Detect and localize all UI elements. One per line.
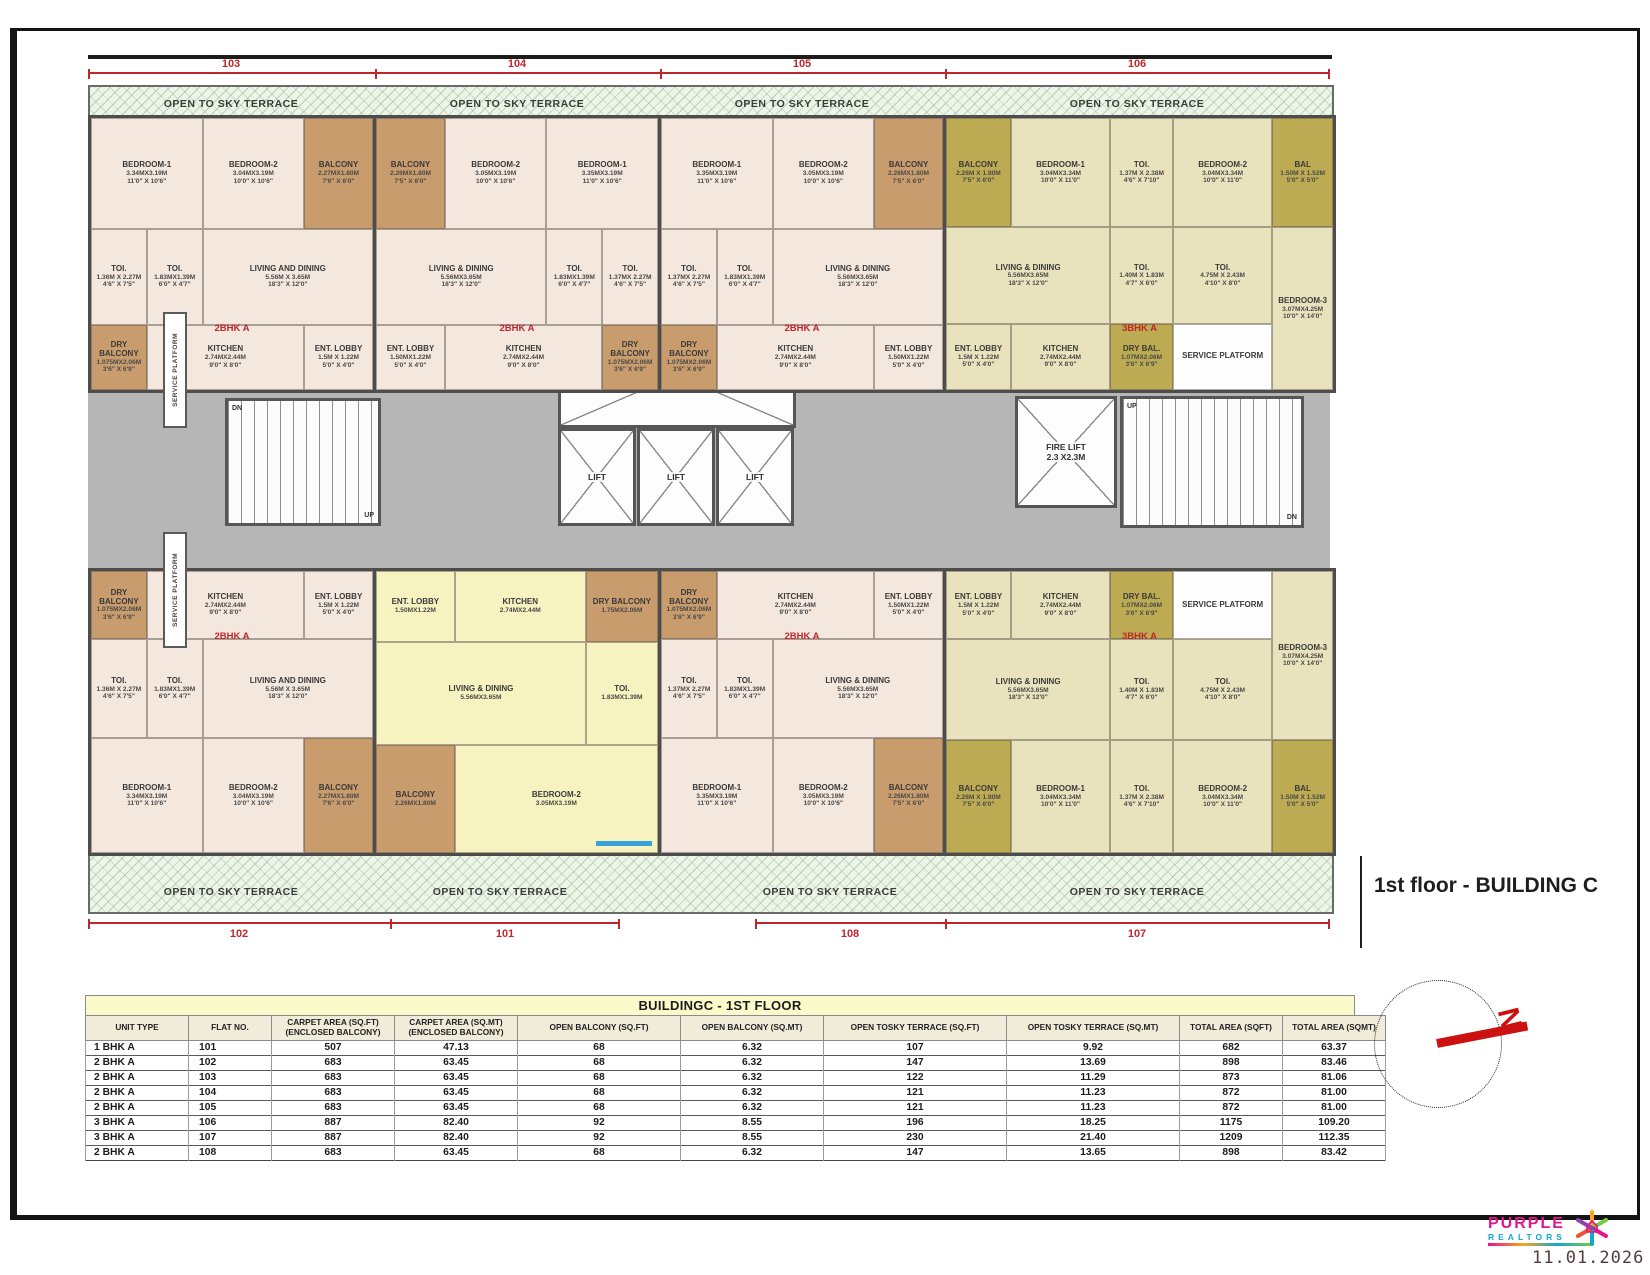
table-cell: 11.29 <box>1007 1070 1180 1085</box>
table-cell: 11.23 <box>1007 1100 1180 1115</box>
room-bal: BALCONY2.27MX1.80M7'6" X 6'0" <box>304 118 373 229</box>
room-dry: DRY BALCONY1.075MX2.06M3'6" X 6'9" <box>91 325 147 390</box>
table-cell: 18.25 <box>1007 1115 1180 1130</box>
room-b1: BEDROOM-13.35MX3.19M11'0" X 10'6" <box>661 738 773 853</box>
col-header: TOTAL AREA (SQFT) <box>1180 1016 1283 1041</box>
table-cell: 6.32 <box>681 1055 824 1070</box>
terrace-label: OPEN TO SKY TERRACE <box>1070 98 1205 110</box>
room-ld: LIVING & DINING5.56MX3.65M18'3" X 12'0" <box>946 227 1110 324</box>
terrace-label: OPEN TO SKY TERRACE <box>735 98 870 110</box>
table-cell: 8.55 <box>681 1130 824 1145</box>
table-cell: 683 <box>272 1070 395 1085</box>
room-toi2: TOI.1.83MX1.39M6'0" X 4'7" <box>717 229 773 325</box>
room-b2: BEDROOM-23.05MX3.19M <box>455 745 658 853</box>
area-statement: BUILDINGC - 1ST FLOOR UNIT TYPEFLAT NO.C… <box>85 995 1355 1161</box>
room-sp: SERVICE PLATFORM <box>1173 324 1272 390</box>
table-cell: 1209 <box>1180 1130 1283 1145</box>
terrace-label: OPEN TO SKY TERRACE <box>1070 886 1205 898</box>
unit-102: DRY BALCONY1.075MX2.06M3'6" X 6'9"KITCHE… <box>88 568 376 856</box>
room-ld: LIVING & DINING5.56MX3.65M18'3" X 12'0" <box>376 229 546 325</box>
room-kit: KITCHEN2.74MX2.44M9'0" X 8'0" <box>1011 571 1110 639</box>
date-stamp: 11.01.2026 <box>1532 1248 1644 1268</box>
room-toi: TOI.1.37MX 2.27M4'6" X 7'5" <box>661 229 717 325</box>
table-row: 2 BHK A10468363.45686.3212111.2387281.00 <box>86 1085 1386 1100</box>
room-b2: BEDROOM-23.05MX3.19M10'0" X 10'6" <box>773 118 874 229</box>
col-header: OPEN BALCONY (SQ.FT) <box>518 1016 681 1041</box>
table-cell: 81.00 <box>1283 1085 1386 1100</box>
unit-type-label: 2BHK A <box>214 323 249 334</box>
table-cell: 104 <box>189 1085 272 1100</box>
table-cell: 196 <box>824 1115 1007 1130</box>
room-bal2: BAL1.50M X 1.52M5'0" X 5'0" <box>1272 740 1333 853</box>
table-cell: 6.32 <box>681 1040 824 1055</box>
table-cell: 8.55 <box>681 1115 824 1130</box>
room-dry: DRY BALCONY1.075MX2.06M3'6" X 6'9" <box>661 325 717 390</box>
table-row: 3 BHK A10688782.40928.5519618.251175109.… <box>86 1115 1386 1130</box>
room-b1: BEDROOM-13.34MX3.19M11'0" X 10'6" <box>91 118 203 229</box>
flat-number-103: 103 <box>222 58 240 70</box>
table-cell: 887 <box>272 1115 395 1130</box>
table-cell: 122 <box>824 1070 1007 1085</box>
room-t2: TOI.1.40M X 1.83M4'7" X 6'0" <box>1110 639 1173 740</box>
table-cell: 872 <box>1180 1100 1283 1115</box>
table-cell: 507 <box>272 1040 395 1055</box>
col-header: TOTAL AREA (SQMT) <box>1283 1016 1386 1041</box>
table-cell: 2 BHK A <box>86 1145 189 1160</box>
room-kit: KITCHEN2.74MX2.44M <box>455 571 586 642</box>
col-header: OPEN TOSKY TERRACE (SQ.FT) <box>824 1016 1007 1041</box>
room-kit: KITCHEN2.74MX2.44M9'0" X 8'0" <box>1011 324 1110 390</box>
room-ent: ENT. LOBBY1.50MX1.22M5'0" X 4'0" <box>874 325 943 390</box>
table-cell: 872 <box>1180 1085 1283 1100</box>
col-header: UNIT TYPE <box>86 1016 189 1041</box>
logo-name: PURPLE <box>1488 1216 1648 1232</box>
entrance-marker <box>596 841 652 846</box>
table-cell: 106 <box>189 1115 272 1130</box>
flat-number-104: 104 <box>508 58 526 70</box>
room-ld: LIVING & DINING5.56MX3.65M18'3" X 12'0" <box>946 639 1110 740</box>
terrace-label: OPEN TO SKY TERRACE <box>763 886 898 898</box>
room-ent: ENT. LOBBY1.5M X 1.22M5'0" X 4'0" <box>304 571 373 639</box>
table-row: 2 BHK A10568363.45686.3212111.2387281.00 <box>86 1100 1386 1115</box>
col-header: FLAT NO. <box>189 1016 272 1041</box>
table-cell: 68 <box>518 1145 681 1160</box>
table-cell: 83.46 <box>1283 1055 1386 1070</box>
table-cell: 3 BHK A <box>86 1115 189 1130</box>
room-ent: ENT. LOBBY1.50MX1.22M5'0" X 4'0" <box>376 325 445 390</box>
table-cell: 105 <box>189 1100 272 1115</box>
table-cell: 898 <box>1180 1145 1283 1160</box>
table-cell: 898 <box>1180 1055 1283 1070</box>
room-kit: KITCHEN2.74MX2.44M9'0" X 8'0" <box>717 571 874 639</box>
table-cell: 82.40 <box>395 1130 518 1145</box>
col-header: OPEN TOSKY TERRACE (SQ.MT) <box>1007 1016 1180 1041</box>
table-cell: 6.32 <box>681 1100 824 1115</box>
room-b2: BEDROOM-23.05MX3.19M10'0" X 10'6" <box>773 738 874 853</box>
service-platform-left-bottom: SERVICE PLATFORM <box>163 532 187 648</box>
table-cell: 103 <box>189 1070 272 1085</box>
room-bal2: BAL1.50M X 1.52M5'0" X 5'0" <box>1272 118 1333 227</box>
table-cell: 107 <box>189 1130 272 1145</box>
service-platform-left-top: SERVICE PLATFORM <box>163 312 187 428</box>
table-cell: 47.13 <box>395 1040 518 1055</box>
table-title: BUILDINGC - 1ST FLOOR <box>85 995 1355 1015</box>
table-cell: 63.45 <box>395 1100 518 1115</box>
unit-108: DRY BALCONY1.075MX2.06M3'6" X 6'9"KITCHE… <box>658 568 946 856</box>
room-t3: TOI.4.75M X 2.43M4'10" X 8'0" <box>1173 227 1272 324</box>
room-ld: LIVING & DINING5.56MX3.65M18'3" X 12'0" <box>773 639 943 739</box>
table-cell: 102 <box>189 1055 272 1070</box>
logo-sub: REALTORS <box>1488 1232 1648 1242</box>
table-cell: 83.42 <box>1283 1145 1386 1160</box>
flat-number-107: 107 <box>1128 928 1146 940</box>
room-bal: BALCONY2.26M X 1.80M7'5" X 6'0" <box>946 740 1011 853</box>
table-cell: 68 <box>518 1055 681 1070</box>
table-cell: 121 <box>824 1085 1007 1100</box>
room-ld: LIVING AND DINING5.56M X 3.65M18'3" X 12… <box>203 229 373 325</box>
terrace-label: OPEN TO SKY TERRACE <box>164 98 299 110</box>
col-header: CARPET AREA (SQ.FT)(ENCLOSED BALCONY) <box>272 1016 395 1041</box>
table-cell: 1 BHK A <box>86 1040 189 1055</box>
table-cell: 63.37 <box>1283 1040 1386 1055</box>
table-cell: 230 <box>824 1130 1007 1145</box>
lift-3: LIFT <box>716 428 794 526</box>
table-cell: 112.35 <box>1283 1130 1386 1145</box>
flat-number-101: 101 <box>496 928 514 940</box>
unit-type-label: 2BHK A <box>499 323 534 334</box>
table-cell: 2 BHK A <box>86 1085 189 1100</box>
table-cell: 63.45 <box>395 1145 518 1160</box>
room-b1: BEDROOM-13.34MX3.19M11'0" X 10'6" <box>91 738 203 853</box>
table-cell: 63.45 <box>395 1085 518 1100</box>
room-toi2: TOI.1.83MX1.39M6'0" X 4'7" <box>546 229 602 325</box>
floor-plan: 103 104 105 106 OPEN TO SKY TERRACE OPEN… <box>0 0 1650 960</box>
flat-number-108: 108 <box>841 928 859 940</box>
table-cell: 81.06 <box>1283 1070 1386 1085</box>
table-cell: 6.32 <box>681 1145 824 1160</box>
unit-type-label: 2BHK A <box>784 631 819 642</box>
unit-103: BEDROOM-13.34MX3.19M11'0" X 10'6"BEDROOM… <box>88 115 376 393</box>
room-t1: TOI.1.37M X 2.38M4'6" X 7'10" <box>1110 118 1173 227</box>
room-toi: TOI.1.36M X 2.27M4'6" X 7'5" <box>91 639 147 739</box>
room-toi: TOI.1.36M X 2.27M4'6" X 7'5" <box>91 229 147 325</box>
table-cell: 2 BHK A <box>86 1100 189 1115</box>
room-bal: BALCONY2.26MX1.80M7'5" X 6'0" <box>874 118 943 229</box>
room-bal: BALCONY2.26MX1.80M7'5" X 6'0" <box>874 738 943 853</box>
room-t3: TOI.4.75M X 2.43M4'10" X 8'0" <box>1173 639 1272 740</box>
table-row: 1 BHK A10150747.13686.321079.9268263.37 <box>86 1040 1386 1055</box>
unit-type-label: 3BHK A <box>1122 631 1157 642</box>
table-cell: 11.23 <box>1007 1085 1180 1100</box>
room-kit: KITCHEN2.74MX2.44M9'0" X 8'0" <box>717 325 874 390</box>
room-ld: LIVING & DINING5.56MX3.65M <box>376 642 586 745</box>
flat-number-106: 106 <box>1128 58 1146 70</box>
table-cell: 2 BHK A <box>86 1070 189 1085</box>
room-toi: TOI.1.83MX1.39M <box>586 642 658 745</box>
terrace-label: OPEN TO SKY TERRACE <box>450 98 585 110</box>
col-header: CARPET AREA (SQ.MT)(ENCLOSED BALCONY) <box>395 1016 518 1041</box>
room-b2: BEDROOM-23.04MX3.34M10'0" X 11'0" <box>1173 740 1272 853</box>
table-cell: 683 <box>272 1055 395 1070</box>
table-cell: 109.20 <box>1283 1115 1386 1130</box>
table-cell: 9.92 <box>1007 1040 1180 1055</box>
table-cell: 1175 <box>1180 1115 1283 1130</box>
table-row: 2 BHK A10368363.45686.3212211.2987381.06 <box>86 1070 1386 1085</box>
table-cell: 63.45 <box>395 1055 518 1070</box>
room-t2: TOI.1.40M X 1.83M4'7" X 6'0" <box>1110 227 1173 324</box>
unit-101: ENT. LOBBY1.50MX1.22MKITCHEN2.74MX2.44MD… <box>373 568 661 856</box>
table-cell: 683 <box>272 1085 395 1100</box>
table-cell: 68 <box>518 1100 681 1115</box>
unit-type-label: 2BHK A <box>784 323 819 334</box>
room-ld: LIVING & DINING5.56MX3.65M18'3" X 12'0" <box>773 229 943 325</box>
room-b2: BEDROOM-23.04MX3.34M10'0" X 11'0" <box>1173 118 1272 227</box>
unit-107: ENT. LOBBY1.5M X 1.22M5'0" X 4'0"KITCHEN… <box>943 568 1336 856</box>
room-bal: BALCONY2.27MX1.80M7'6" X 6'0" <box>304 738 373 853</box>
room-ld: LIVING AND DINING5.56M X 3.65M18'3" X 12… <box>203 639 373 739</box>
page-title: 1st floor - BUILDING C <box>1374 874 1640 898</box>
room-dry: DRY BAL.1.07MX2.06M3'6" X 6'9" <box>1110 571 1173 639</box>
room-sp: SERVICE PLATFORM <box>1173 571 1272 639</box>
room-ent: ENT. LOBBY1.5M X 1.22M5'0" X 4'0" <box>946 571 1011 639</box>
table-cell: 108 <box>189 1145 272 1160</box>
unit-106: BALCONY2.26M X 1.80M7'5" X 6'0"BEDROOM-1… <box>943 115 1336 393</box>
table-cell: 121 <box>824 1100 1007 1115</box>
unit-type-label: 2BHK A <box>214 631 249 642</box>
table-cell: 147 <box>824 1145 1007 1160</box>
table-cell: 682 <box>1180 1040 1283 1055</box>
unit-105: BEDROOM-13.35MX3.19M11'0" X 10'6"BEDROOM… <box>658 115 946 393</box>
table-cell: 68 <box>518 1040 681 1055</box>
room-toi: TOI.1.37MX 2.27M4'6" X 7'5" <box>602 229 658 325</box>
terrace-label: OPEN TO SKY TERRACE <box>164 886 299 898</box>
room-ent: ENT. LOBBY1.5M X 1.22M5'0" X 4'0" <box>946 324 1011 390</box>
table-cell: 13.65 <box>1007 1145 1180 1160</box>
title-divider <box>1360 856 1362 948</box>
room-dry: DRY BALCONY1.75MX2.06M <box>586 571 658 642</box>
room-kit: KITCHEN2.74MX2.44M9'0" X 8'0" <box>445 325 602 390</box>
company-logo: PURPLE REALTORS <box>1488 1216 1648 1246</box>
table-row: 3 BHK A10788782.40928.5523021.401209112.… <box>86 1130 1386 1145</box>
room-dry: DRY BALCONY1.075MX2.06M3'6" X 6'9" <box>602 325 658 390</box>
room-ent: ENT. LOBBY1.50MX1.22M <box>376 571 455 642</box>
room-b2: BEDROOM-23.04MX3.19M10'0" X 10'6" <box>203 738 304 853</box>
table-cell: 2 BHK A <box>86 1055 189 1070</box>
table-cell: 63.45 <box>395 1070 518 1085</box>
table-cell: 92 <box>518 1115 681 1130</box>
table-row: 2 BHK A10868363.45686.3214713.6589883.42 <box>86 1145 1386 1160</box>
dimension-line-bottom-right <box>755 922 1330 924</box>
room-toi2: TOI.1.83MX1.39M6'0" X 4'7" <box>147 639 203 739</box>
room-bal: BALCONY2.26MX1.80M7'5" X 6'0" <box>376 118 445 229</box>
table-cell: 101 <box>189 1040 272 1055</box>
fire-lift: FIRE LIFT2.3 X2.3M <box>1015 396 1117 508</box>
staircase-left: DN UP <box>225 398 381 526</box>
room-toi2: TOI.1.83MX1.39M6'0" X 4'7" <box>717 639 773 739</box>
room-dry: DRY BALCONY1.075MX2.06M3'6" X 6'9" <box>91 571 147 639</box>
table-cell: 147 <box>824 1055 1007 1070</box>
table-cell: 68 <box>518 1070 681 1085</box>
table-cell: 6.32 <box>681 1070 824 1085</box>
table-cell: 68 <box>518 1085 681 1100</box>
table-cell: 3 BHK A <box>86 1130 189 1145</box>
table-cell: 92 <box>518 1130 681 1145</box>
room-ent: ENT. LOBBY1.50MX1.22M5'0" X 4'0" <box>874 571 943 639</box>
table-cell: 887 <box>272 1130 395 1145</box>
table-cell: 107 <box>824 1040 1007 1055</box>
dimension-line-top <box>88 72 1330 74</box>
terrace-label: OPEN TO SKY TERRACE <box>433 886 568 898</box>
table-cell: 13.69 <box>1007 1055 1180 1070</box>
room-bal: BALCONY2.26MX1.80M <box>376 745 455 853</box>
area-table: UNIT TYPEFLAT NO.CARPET AREA (SQ.FT)(ENC… <box>85 1015 1386 1161</box>
room-b3: BEDROOM-33.07MX4.25M10'0" X 14'0" <box>1272 227 1333 390</box>
room-b3: BEDROOM-33.07MX4.25M10'0" X 14'0" <box>1272 571 1333 740</box>
logo-star-icon <box>1574 1208 1610 1248</box>
room-b2: BEDROOM-23.04MX3.19M10'0" X 10'6" <box>203 118 304 229</box>
unit-104: BALCONY2.26MX1.80M7'5" X 6'0"BEDROOM-23.… <box>373 115 661 393</box>
table-cell: 6.32 <box>681 1085 824 1100</box>
table-cell: 683 <box>272 1100 395 1115</box>
col-header: OPEN BALCONY (SQ.MT) <box>681 1016 824 1041</box>
table-cell: 82.40 <box>395 1115 518 1130</box>
room-toi2: TOI.1.83MX1.39M6'0" X 4'7" <box>147 229 203 325</box>
room-b2: BEDROOM-23.05MX3.19M10'0" X 10'6" <box>445 118 546 229</box>
lift-1: LIFT <box>558 428 636 526</box>
room-ent: ENT. LOBBY1.5M X 1.22M5'0" X 4'0" <box>304 325 373 390</box>
flat-number-105: 105 <box>793 58 811 70</box>
room-b1: BEDROOM-13.04MX3.34M10'0" X 11'0" <box>1011 740 1110 853</box>
room-dry: DRY BALCONY1.075MX2.06M3'6" X 6'9" <box>661 571 717 639</box>
table-row: 2 BHK A10268363.45686.3214713.6989883.46 <box>86 1055 1386 1070</box>
table-cell: 873 <box>1180 1070 1283 1085</box>
room-t1: TOI.1.37M X 2.38M4'6" X 7'10" <box>1110 740 1173 853</box>
staircase-right: UP DN <box>1120 396 1304 528</box>
table-cell: 683 <box>272 1145 395 1160</box>
flat-number-102: 102 <box>230 928 248 940</box>
table-cell: 81.00 <box>1283 1100 1386 1115</box>
room-bal: BALCONY2.26M X 1.80M7'5" X 6'0" <box>946 118 1011 227</box>
room-b1: BEDROOM-13.04MX3.34M10'0" X 11'0" <box>1011 118 1110 227</box>
lift-2: LIFT <box>637 428 715 526</box>
unit-type-label: 3BHK A <box>1122 323 1157 334</box>
dimension-line-bottom-left <box>88 922 620 924</box>
room-toi: TOI.1.37MX 2.27M4'6" X 7'5" <box>661 639 717 739</box>
room-b1: BEDROOM-13.35MX3.19M11'0" X 10'6" <box>661 118 773 229</box>
table-cell: 21.40 <box>1007 1130 1180 1145</box>
room-b1: BEDROOM-13.35MX3.19M11'0" X 10'6" <box>546 118 658 229</box>
